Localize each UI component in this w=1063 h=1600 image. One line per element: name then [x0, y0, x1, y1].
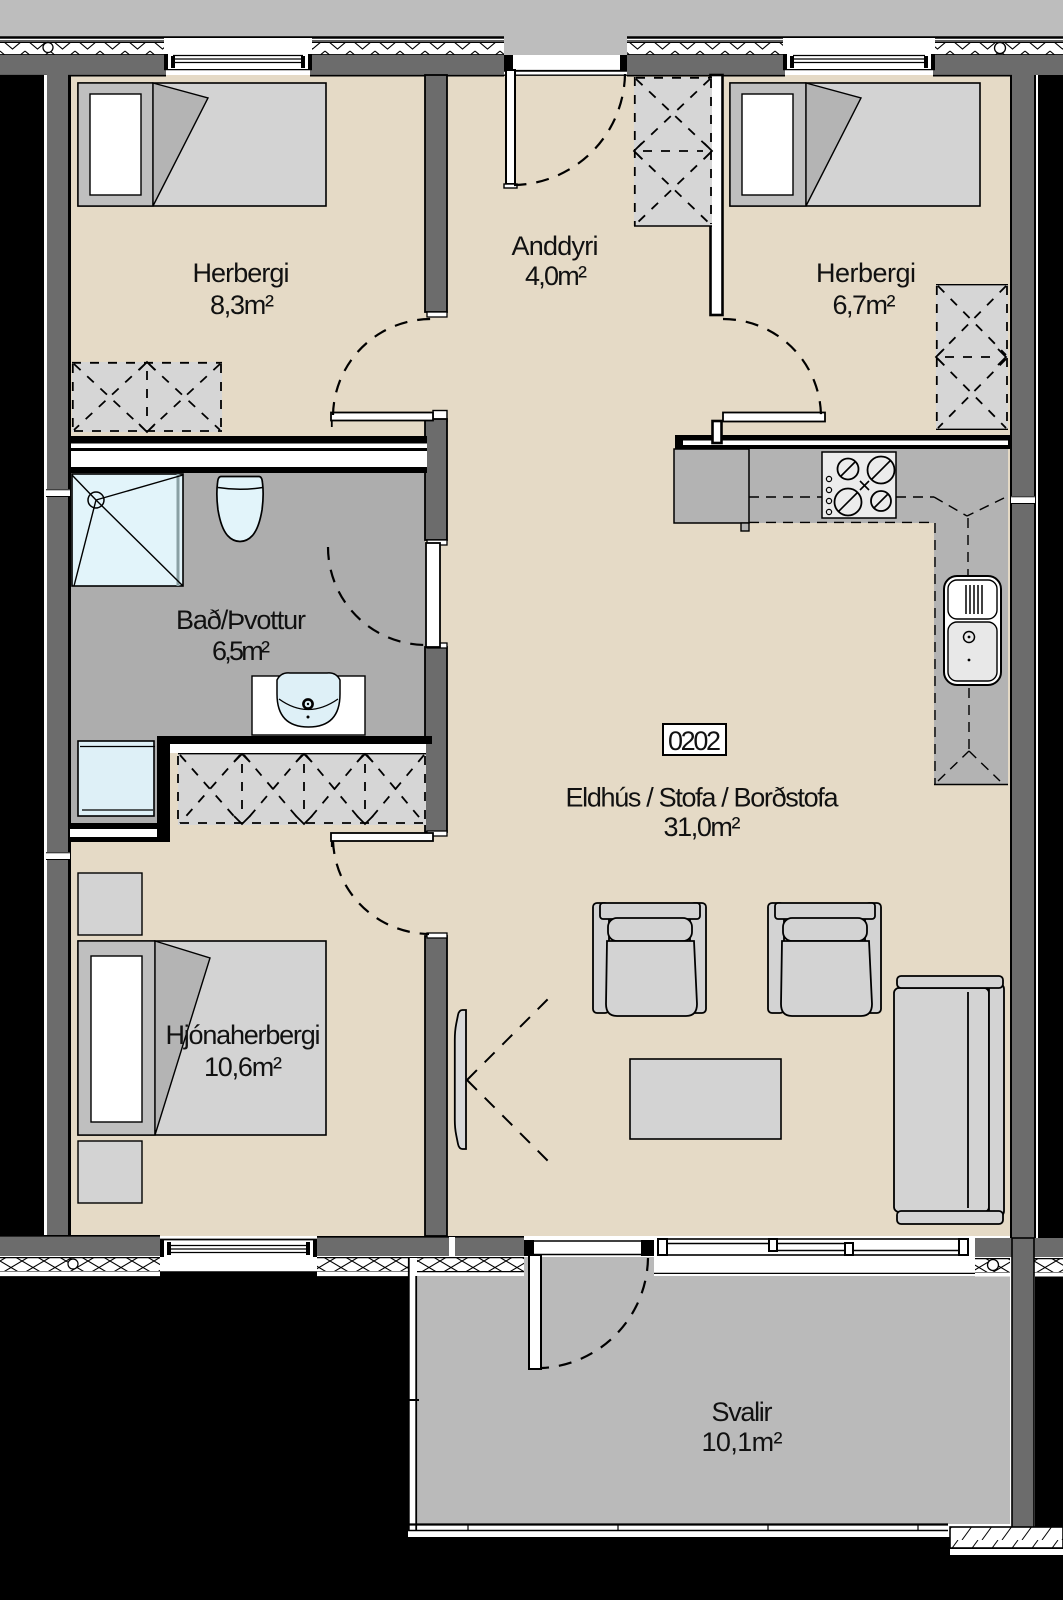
svg-text:Eldhús / Stofa / Borðstofa: Eldhús / Stofa / Borðstofa	[566, 783, 840, 813]
svg-text:8,3m²: 8,3m²	[210, 290, 274, 320]
svg-text:Herbergi: Herbergi	[193, 258, 290, 288]
svg-text:Herbergi: Herbergi	[816, 258, 916, 288]
svg-text:Anddyri: Anddyri	[512, 231, 599, 261]
svg-text:4,0m²: 4,0m²	[525, 261, 587, 291]
svg-text:6,5m²: 6,5m²	[212, 636, 270, 666]
svg-text:Hjónaherbergi: Hjónaherbergi	[166, 1020, 321, 1050]
svg-text:Bað/Þvottur: Bað/Þvottur	[176, 605, 306, 635]
svg-text:10,6m²: 10,6m²	[204, 1052, 282, 1082]
svg-text:10,1m²: 10,1m²	[702, 1427, 783, 1457]
svg-text:Svalir: Svalir	[712, 1397, 773, 1427]
svg-text:6,7m²: 6,7m²	[833, 290, 896, 320]
svg-text:0202: 0202	[668, 726, 721, 756]
svg-text:31,0m²: 31,0m²	[664, 812, 741, 842]
